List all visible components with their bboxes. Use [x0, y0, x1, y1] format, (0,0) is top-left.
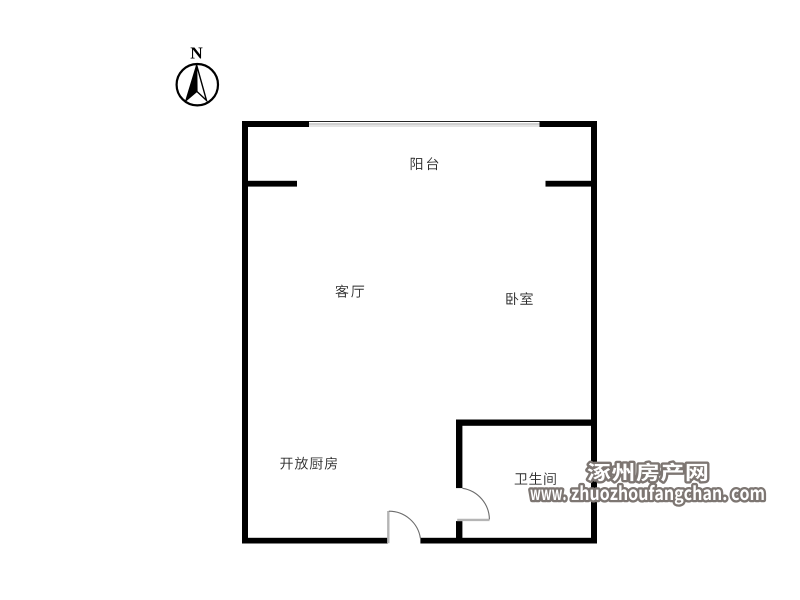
svg-text:N: N	[190, 43, 203, 62]
